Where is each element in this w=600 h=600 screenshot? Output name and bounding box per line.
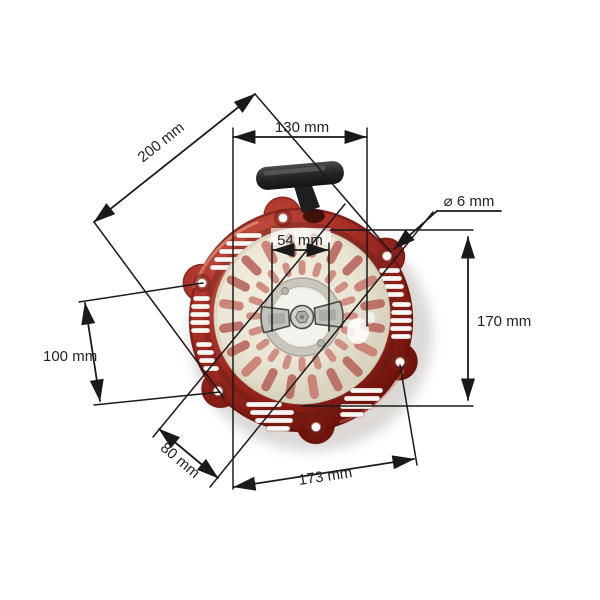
dimension-label-100mm: 100 mm (43, 348, 97, 365)
handle-grip (255, 160, 345, 191)
dimension-label-173mm: 173 mm (297, 464, 353, 489)
glare-spot (347, 318, 369, 344)
dimension-label-130mm: 130 mm (275, 119, 329, 136)
pawl-stud (318, 340, 325, 347)
product-dimension-image: 200 mm 130 mm 54 mm ⌀ 6 mm 170 mm (0, 0, 600, 600)
dimension-label-170mm: 170 mm (477, 313, 531, 330)
dimension-label-54mm: 54 mm (277, 232, 323, 249)
recoil-starter-dimension-drawing: 200 mm 130 mm 54 mm ⌀ 6 mm 170 mm (0, 0, 600, 600)
recoil-starter-photo (183, 160, 432, 451)
pawl-stud (282, 288, 289, 295)
dimension-label-6mm: ⌀ 6 mm (444, 193, 495, 210)
dimension-label-200mm: 200 mm (135, 119, 188, 166)
